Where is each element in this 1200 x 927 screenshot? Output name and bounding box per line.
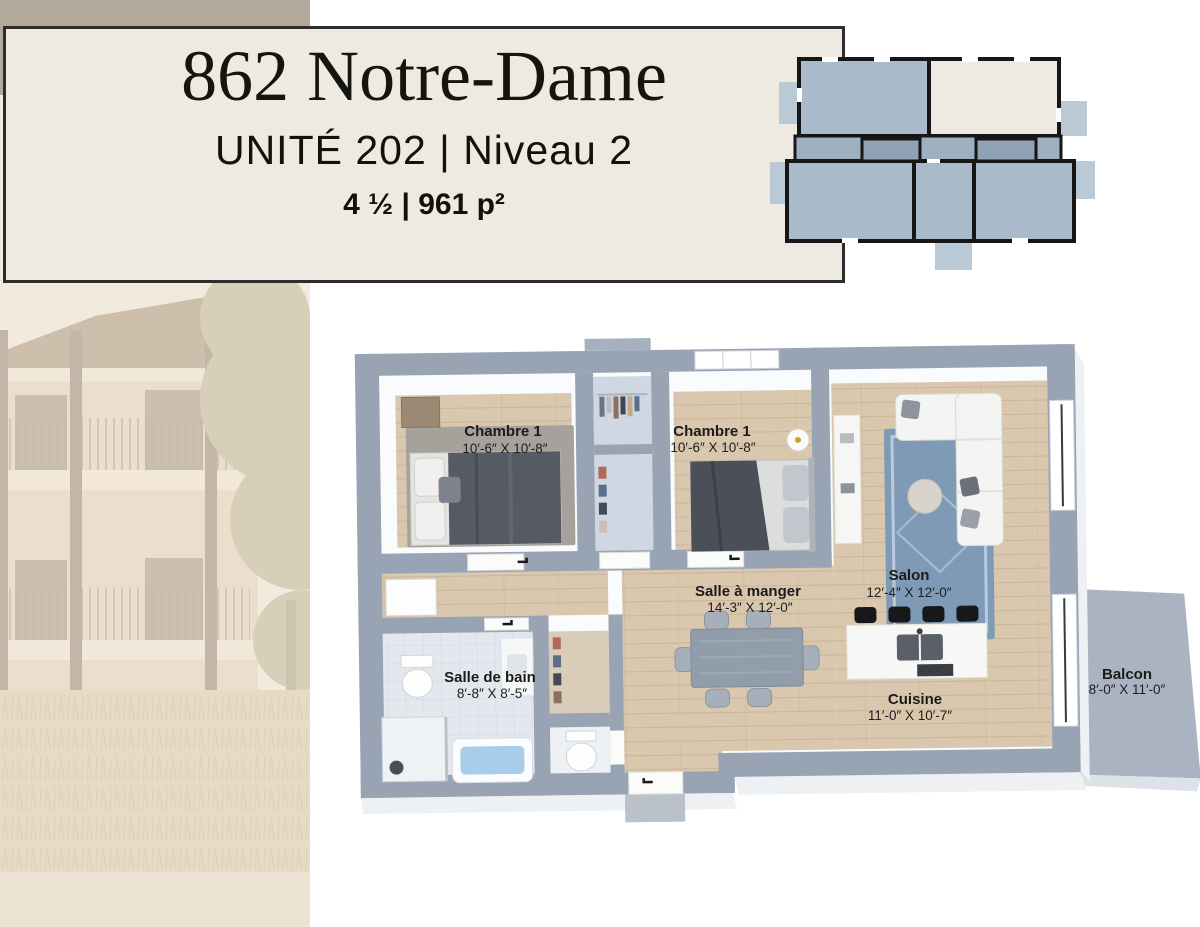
accent-pillow	[438, 477, 460, 503]
floor-plan-structure	[355, 335, 1200, 826]
svg-text:Chambre 1: Chambre 1	[464, 423, 542, 440]
key-plan	[762, 48, 1097, 273]
room-label-chambre-1: Chambre 1 10′-6″ X 10′-8″	[462, 423, 547, 456]
room-label-chambre-2: Chambre 1 10′-6″ X 10′-8″	[670, 423, 755, 455]
pillow	[415, 502, 446, 540]
svg-text:Salon: Salon	[889, 567, 930, 584]
pillow	[959, 476, 980, 497]
page: 862 Notre-Dame UNITÉ 202 | Niveau 2 4 ½ …	[0, 0, 1200, 927]
page-title: 862 Notre-Dame	[181, 39, 667, 115]
svg-text:Salle à manger: Salle à manger	[695, 583, 801, 600]
svg-text:Salle de bain: Salle de bain	[444, 669, 536, 686]
wc-toilet	[566, 743, 596, 771]
entry-door	[629, 772, 683, 795]
unit-level-subtitle: UNITÉ 202 | Niveau 2	[215, 127, 633, 174]
svg-text:10′-6″ X 10′-8″: 10′-6″ X 10′-8″	[670, 440, 755, 455]
svg-text:Chambre 1: Chambre 1	[673, 423, 751, 440]
pouf	[908, 479, 942, 513]
svg-text:10′-6″ X 10′-8″: 10′-6″ X 10′-8″	[462, 441, 547, 456]
door-wc	[610, 730, 624, 764]
key-plan-lower-units	[787, 161, 1074, 241]
room-label-salle-de-bain: Salle de bain 8′-8″ X 8′-5″	[444, 669, 536, 701]
svg-text:Cuisine: Cuisine	[888, 691, 942, 708]
key-plan-highlighted-unit	[929, 59, 1059, 136]
dresser	[401, 397, 439, 428]
pillow	[960, 508, 981, 529]
wc-toilet-tank	[566, 731, 596, 741]
pillow	[782, 465, 809, 501]
floor-plan: Chambre 1 10′-6″ X 10′-8″ Chambre 1 10′-…	[350, 335, 1200, 927]
bed-blanket	[448, 451, 561, 545]
key-plan-small-room	[862, 139, 920, 161]
bathtub-water	[460, 746, 524, 775]
bed-blanket	[690, 460, 769, 551]
unit-size-details: 4 ½ | 961 p²	[343, 188, 505, 222]
key-plan-small-room	[976, 139, 1036, 161]
toilet	[402, 669, 432, 697]
pillow	[901, 399, 921, 419]
storage-unit	[386, 579, 436, 616]
stove	[917, 664, 953, 677]
window-chambre2	[695, 350, 779, 369]
pillow	[783, 507, 810, 543]
svg-text:14′-3″ X 12′-0″: 14′-3″ X 12′-0″	[707, 600, 792, 615]
door-closet	[600, 552, 650, 569]
svg-text:12′-4″ X 12′-0″: 12′-4″ X 12′-0″	[866, 585, 951, 600]
svg-text:8′-8″ X 8′-5″: 8′-8″ X 8′-5″	[457, 686, 527, 701]
svg-text:8′-0″ X 11′-0″: 8′-0″ X 11′-0″	[1089, 682, 1166, 697]
door-chambre1	[468, 554, 524, 571]
svg-text:Balcon: Balcon	[1102, 666, 1152, 683]
toilet-tank	[401, 655, 433, 667]
entry-floor	[624, 751, 722, 772]
key-plan-unit	[799, 59, 929, 136]
room-label-salle-a-manger: Salle à manger 14′-3″ X 12′-0″	[695, 583, 801, 615]
svg-text:11′-0″ X 10′-7″: 11′-0″ X 10′-7″	[868, 708, 952, 723]
header-panel: 862 Notre-Dame UNITÉ 202 | Niveau 2 4 ½ …	[3, 26, 845, 283]
